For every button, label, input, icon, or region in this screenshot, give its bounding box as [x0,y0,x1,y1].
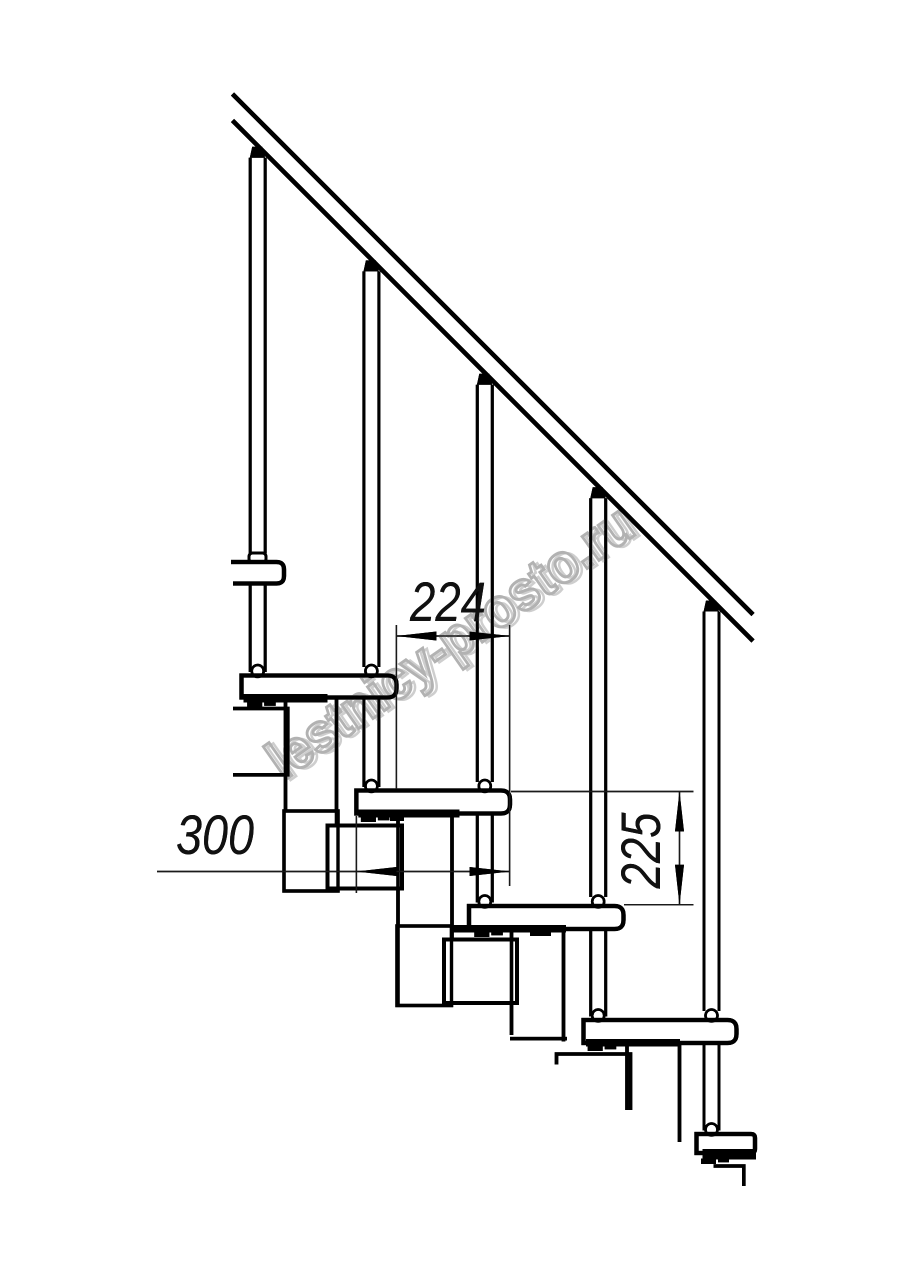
svg-text:224: 224 [409,570,486,633]
svg-text:225: 225 [609,812,672,890]
svg-text:300: 300 [176,803,254,866]
